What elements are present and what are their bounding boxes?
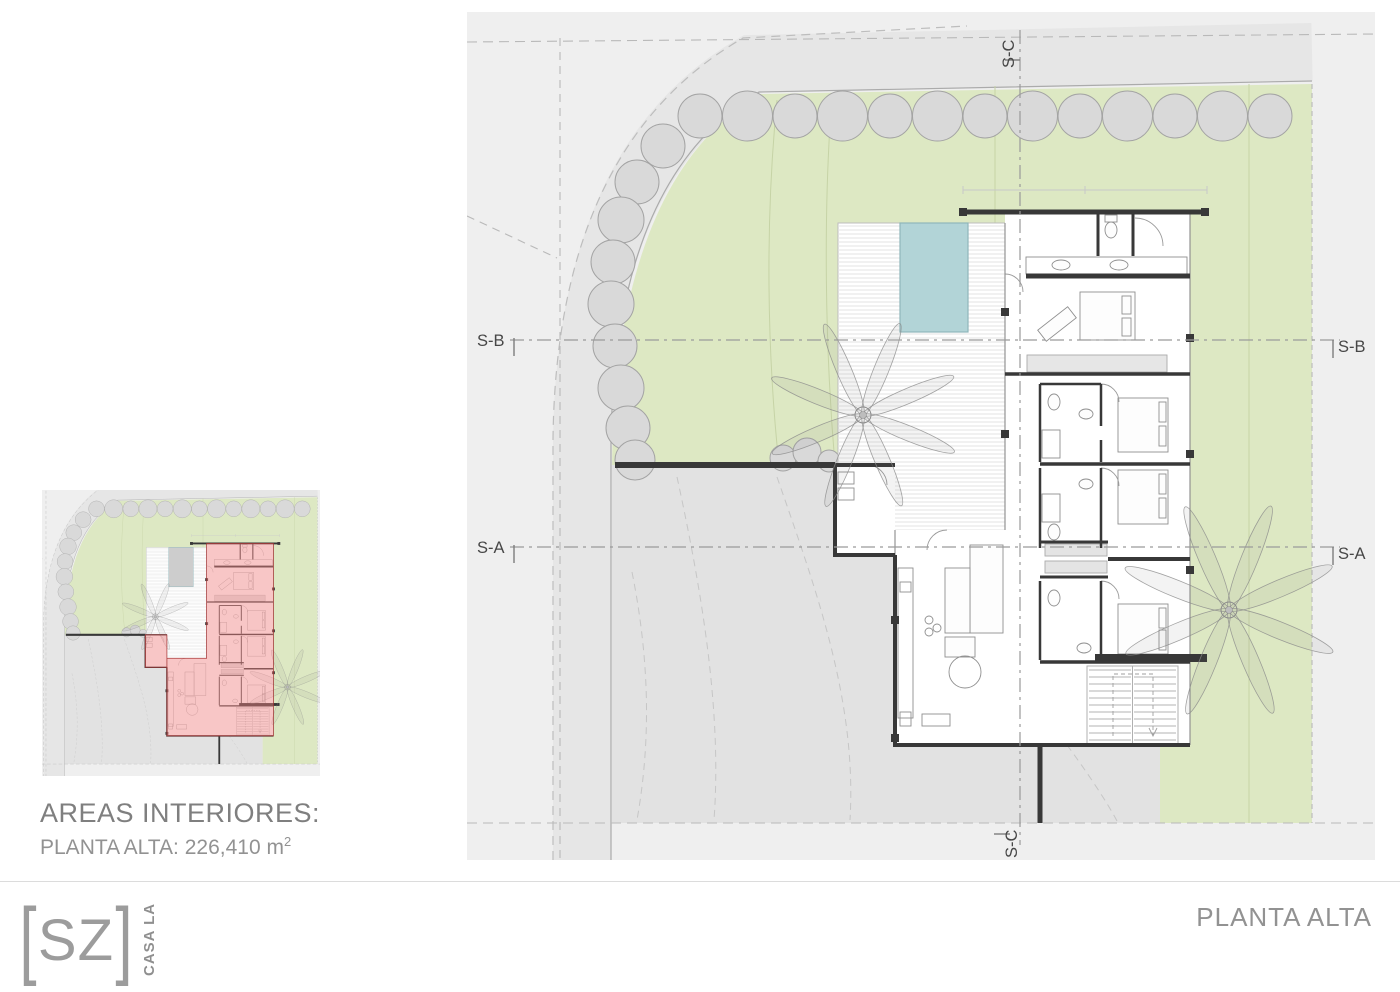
section-label-sa-right: S-A bbox=[1338, 545, 1366, 563]
logo-vertical-text: CASA LA bbox=[141, 900, 158, 978]
footer-divider bbox=[0, 881, 1400, 882]
areas-value: PLANTA ALTA: 226,410 m2 bbox=[40, 834, 320, 860]
areas-value-text: PLANTA ALTA: 226,410 m bbox=[40, 836, 284, 859]
key-plan-drawing bbox=[42, 490, 320, 776]
sheet-title: PLANTA ALTA bbox=[1196, 902, 1372, 933]
logo-bracket-left: [ bbox=[19, 900, 36, 978]
key-plan bbox=[42, 490, 320, 776]
logo-bracket-right: ] bbox=[115, 900, 132, 978]
section-label-sa-left: S-A bbox=[477, 539, 505, 557]
site-plan-drawing bbox=[467, 12, 1375, 860]
section-label-sc-top: S-C bbox=[1000, 40, 1018, 69]
section-label-sc-bottom: S-C bbox=[1003, 830, 1021, 859]
logo-initials: SZ bbox=[38, 898, 114, 980]
section-label-sb-left: S-B bbox=[477, 332, 505, 350]
areas-value-sup: 2 bbox=[284, 834, 291, 849]
section-label-sb-right: S-B bbox=[1338, 338, 1366, 356]
areas-heading: AREAS INTERIORES: bbox=[40, 798, 320, 829]
logo: [ SZ ] CASA LA bbox=[16, 898, 158, 980]
areas-panel: AREAS INTERIORES: PLANTA ALTA: 226,410 m… bbox=[40, 798, 320, 860]
site-plan: S-B S-B S-A S-A S-C S-C bbox=[467, 12, 1375, 860]
